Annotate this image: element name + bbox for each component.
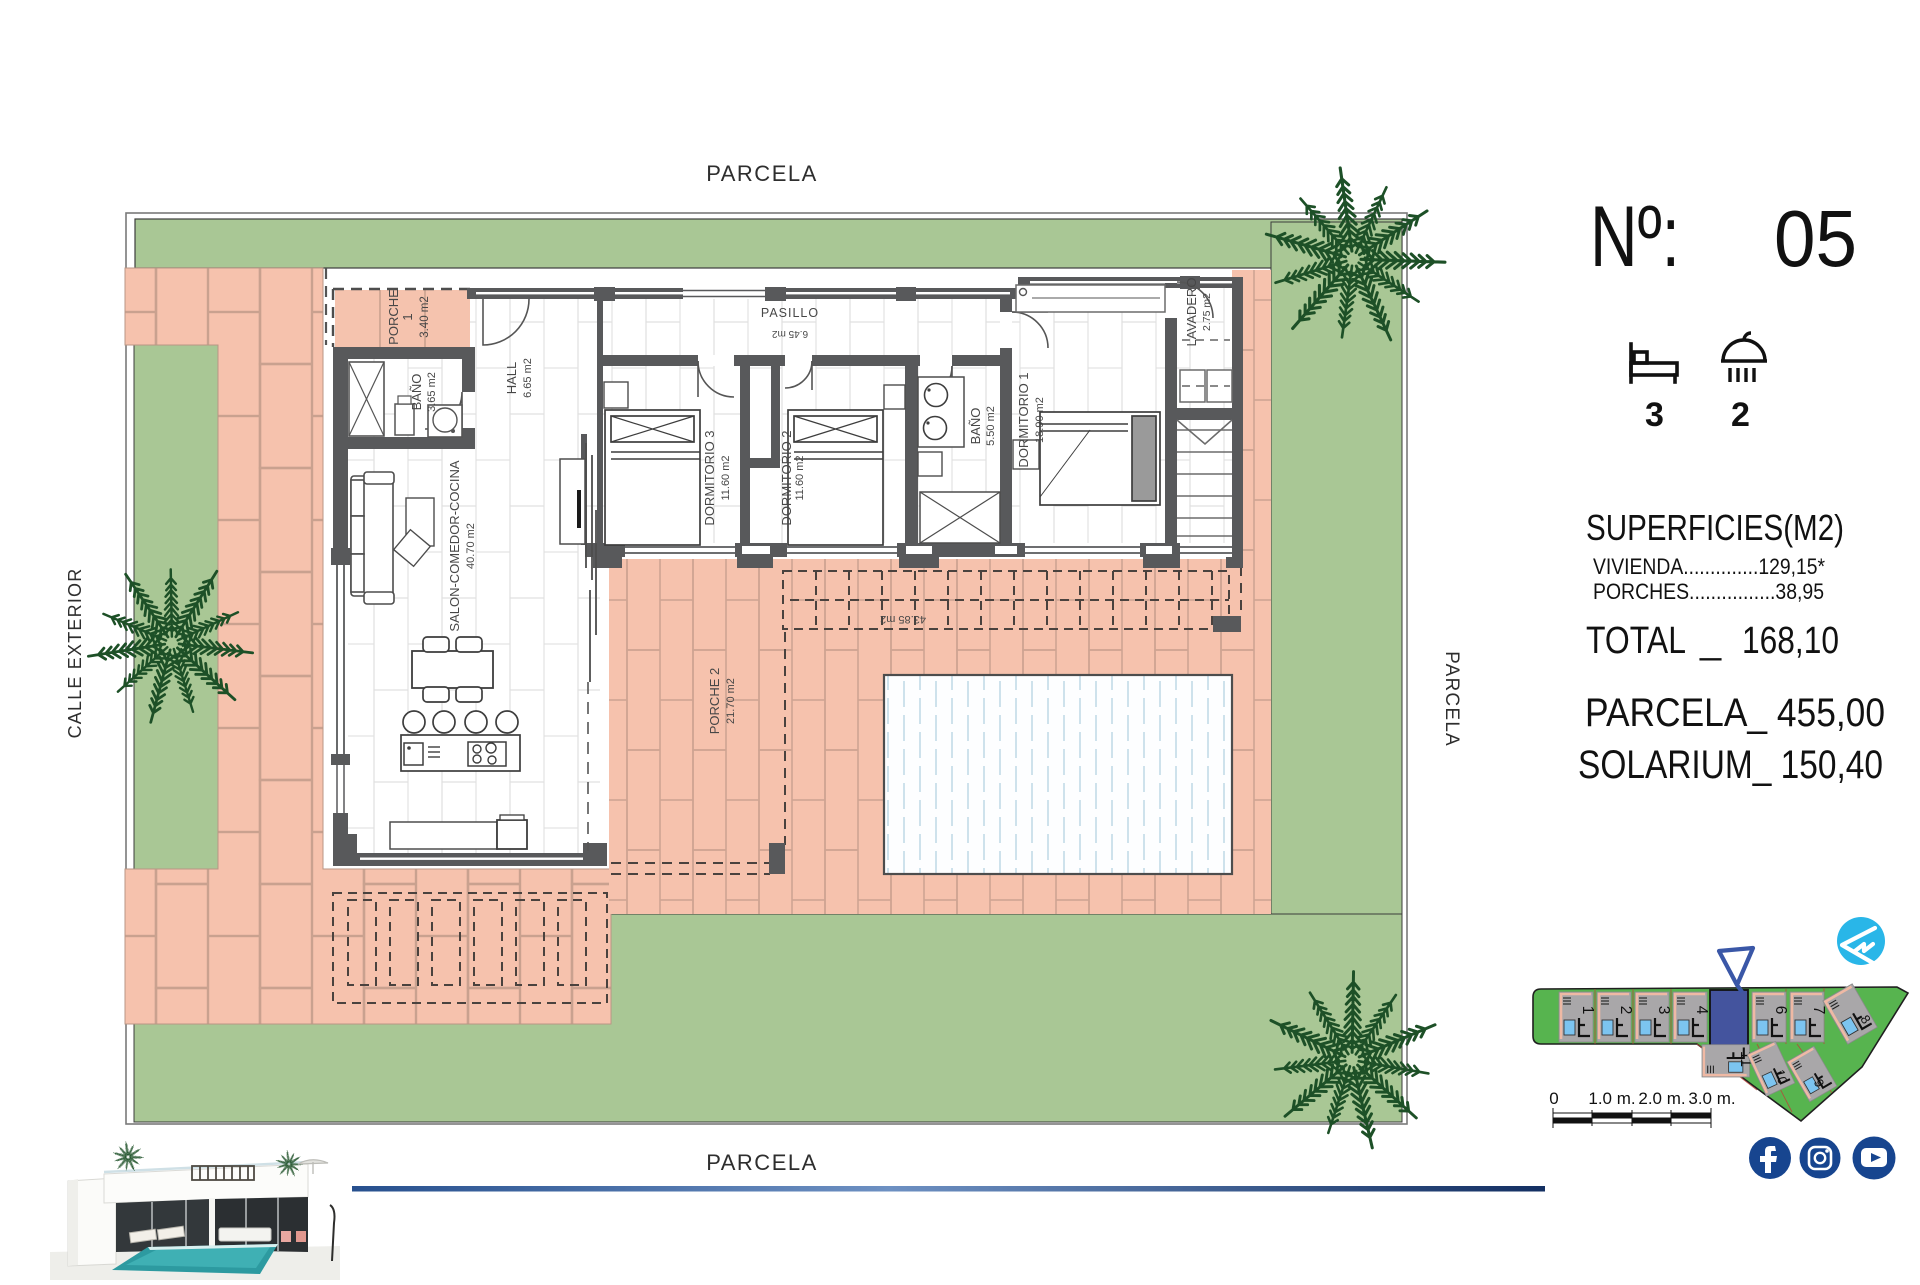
svg-text:3.40 m2: 3.40 m2 <box>419 296 431 338</box>
svg-text:BAÑO: BAÑO <box>409 374 424 411</box>
svg-text:HALL: HALL <box>504 362 519 395</box>
svg-text:11.60 m2: 11.60 m2 <box>720 455 732 500</box>
svg-text:DORMITORIO 1: DORMITORIO 1 <box>1016 372 1031 467</box>
svg-text:6: 6 <box>1772 1006 1789 1015</box>
svg-text:CALLE EXTERIOR: CALLE EXTERIOR <box>65 568 85 739</box>
svg-text:SALON-COMEDOR-COCINA: SALON-COMEDOR-COCINA <box>447 460 462 632</box>
svg-text:6.65 m2: 6.65 m2 <box>522 358 534 398</box>
svg-text:Nº:: Nº: <box>1590 189 1680 285</box>
svg-text:1: 1 <box>400 313 415 320</box>
svg-text:43.85 m2: 43.85 m2 <box>880 613 926 625</box>
svg-text:SOLARIUM_ 150,40: SOLARIUM_ 150,40 <box>1578 743 1883 787</box>
svg-text:3: 3 <box>1655 1006 1672 1015</box>
svg-text:1: 1 <box>1579 1006 1596 1015</box>
svg-text:4: 4 <box>1693 1006 1710 1015</box>
svg-text:05: 05 <box>1774 194 1857 283</box>
svg-text:DORMITORIO 3: DORMITORIO 3 <box>702 430 717 525</box>
svg-text:3.0 m.: 3.0 m. <box>1688 1089 1735 1108</box>
svg-text:VIVIENDA..............129,15*: VIVIENDA..............129,15* <box>1593 554 1825 579</box>
svg-text:PASILLO: PASILLO <box>761 306 819 320</box>
svg-text:6.45 m2: 6.45 m2 <box>771 328 808 339</box>
svg-text:PARCELA_ 455,00: PARCELA_ 455,00 <box>1585 691 1885 735</box>
svg-text:11.60 m2: 11.60 m2 <box>794 455 806 500</box>
svg-text:DORMITORIO 2: DORMITORIO 2 <box>779 430 794 525</box>
svg-text:1.0 m.: 1.0 m. <box>1588 1089 1635 1108</box>
svg-text:PARCELA: PARCELA <box>706 161 818 186</box>
svg-text:21.70 m2: 21.70 m2 <box>725 678 737 724</box>
svg-text:PARCELA: PARCELA <box>706 1150 818 1175</box>
svg-text:LAVADERO: LAVADERO <box>1184 278 1199 347</box>
svg-text:BAÑO: BAÑO <box>968 408 983 445</box>
svg-text:18.90 m2: 18.90 m2 <box>1034 397 1046 443</box>
svg-text:0: 0 <box>1549 1089 1558 1108</box>
svg-text:40.70 m2: 40.70 m2 <box>465 523 477 569</box>
svg-text:2: 2 <box>1731 396 1750 434</box>
svg-text:3: 3 <box>1645 396 1664 434</box>
svg-text:5.50 m2: 5.50 m2 <box>985 406 997 446</box>
svg-text:PORCHES................38,95: PORCHES................38,95 <box>1593 579 1824 604</box>
svg-text:TOTAL: TOTAL <box>1586 620 1686 662</box>
svg-text:168,10: 168,10 <box>1742 620 1839 662</box>
svg-text:7: 7 <box>1810 1006 1827 1015</box>
svg-text:PORCHE 2: PORCHE 2 <box>707 668 722 734</box>
svg-text:PARCELA: PARCELA <box>1441 651 1462 747</box>
svg-text:2.75 m2: 2.75 m2 <box>1201 293 1213 331</box>
svg-text:3.65 m2: 3.65 m2 <box>426 372 438 412</box>
svg-text:SUPERFICIES(M2): SUPERFICIES(M2) <box>1586 507 1844 548</box>
svg-text:2: 2 <box>1617 1006 1634 1015</box>
svg-text:_: _ <box>1699 620 1722 662</box>
svg-text:PORCHE: PORCHE <box>386 289 401 345</box>
svg-text:2.0 m.: 2.0 m. <box>1638 1089 1685 1108</box>
